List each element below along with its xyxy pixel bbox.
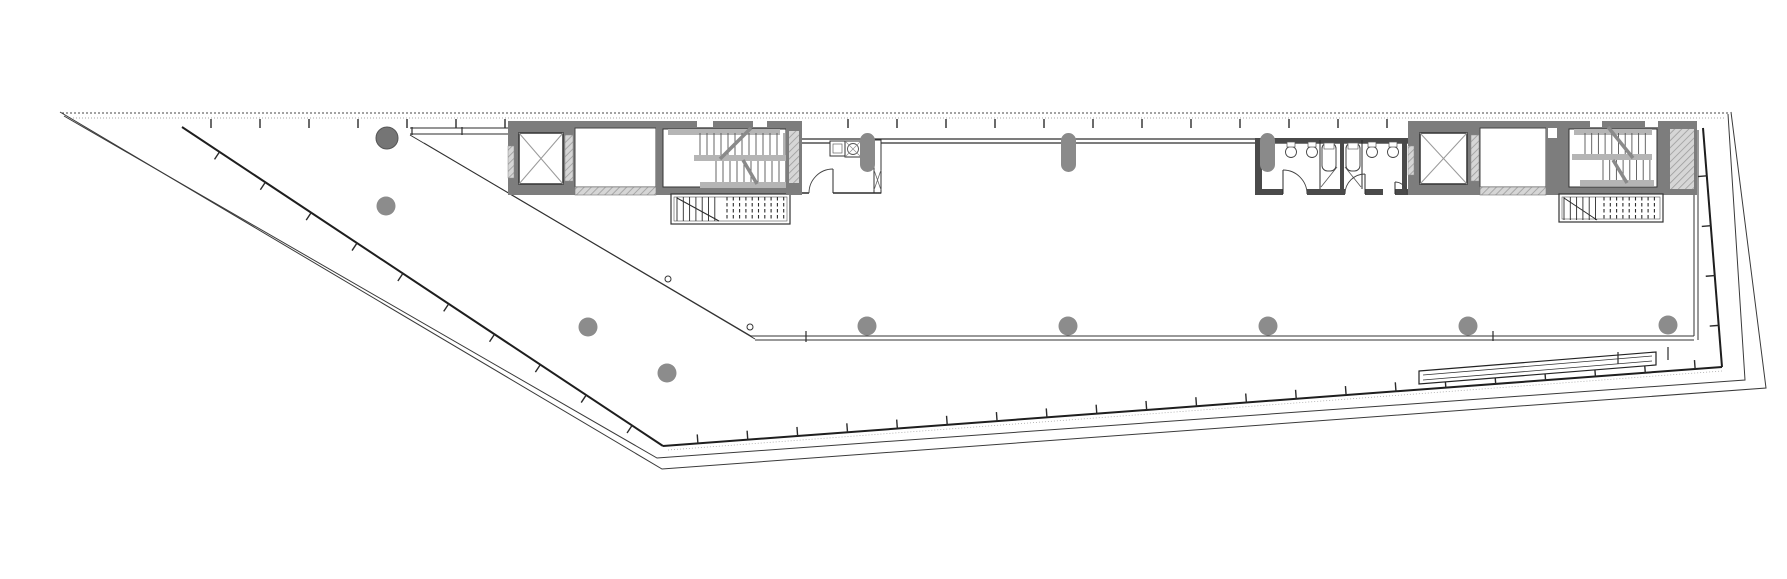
door-gap — [1548, 128, 1557, 138]
mullion-tick — [947, 416, 948, 425]
mullion-tick — [1395, 382, 1396, 391]
strip-outline — [1419, 352, 1656, 384]
mullion-tick — [215, 152, 220, 159]
exterior-stair-outline — [1559, 194, 1663, 222]
column-marker — [1459, 317, 1478, 336]
mullion-tick — [1698, 176, 1707, 177]
mullion-tick — [444, 304, 449, 311]
mullion-tick — [1196, 397, 1197, 406]
mullion-tick — [1246, 394, 1247, 403]
elevator-door — [1408, 146, 1414, 175]
mullion-tick — [996, 412, 997, 421]
restroom-top-wall — [1255, 138, 1408, 143]
vent-gap — [753, 121, 767, 127]
basin-tap — [1308, 142, 1316, 147]
vent-gap — [1645, 121, 1658, 127]
point-marker — [747, 324, 753, 330]
mullion-tick — [490, 334, 495, 341]
lobby-bottom-wall — [575, 187, 656, 195]
lobby-room — [575, 128, 656, 187]
restroom-bottom-wall — [1255, 189, 1283, 195]
basin-fixture — [1307, 147, 1318, 158]
elevator-door — [1471, 135, 1479, 181]
vent-gap — [697, 121, 713, 127]
glass-shadow-dotted — [668, 371, 1722, 450]
mullion-tick — [1702, 226, 1711, 227]
basin-fixture — [1286, 147, 1297, 158]
column-marker — [1059, 317, 1078, 336]
core-wall-hatch — [789, 131, 799, 183]
mullion-tick — [1296, 390, 1297, 399]
mullion-tick — [797, 427, 798, 436]
elevator-door — [508, 146, 514, 178]
basin-tap — [1287, 142, 1295, 147]
stair-landing — [700, 182, 786, 188]
capsule-column — [1260, 133, 1275, 172]
column-marker — [858, 317, 877, 336]
left-core — [508, 121, 802, 224]
stair-landing — [1572, 154, 1652, 160]
vent-gap — [1590, 121, 1602, 127]
mullion-tick — [1096, 405, 1097, 414]
capsule-column — [860, 133, 875, 172]
exterior-stair-outline — [671, 194, 790, 224]
toilet-tank — [1348, 143, 1358, 149]
lobby-room — [1480, 128, 1546, 187]
floor-plan-svg — [0, 0, 1787, 579]
restroom-wall — [1402, 141, 1407, 189]
mullion-tick — [398, 273, 403, 280]
restroom-bottom-wall — [1307, 189, 1345, 195]
point-marker — [665, 276, 671, 282]
column-marker — [1259, 317, 1278, 336]
mullion-tick — [847, 423, 848, 432]
mullion-tick — [1706, 276, 1715, 277]
glass-line — [663, 367, 1722, 446]
column-marker — [579, 318, 598, 337]
mullion-tick — [1146, 401, 1147, 410]
column-marker — [1659, 316, 1678, 335]
basin-tap — [1368, 142, 1376, 147]
restroom-wall — [1340, 141, 1344, 189]
stair-landing — [1580, 180, 1654, 186]
mullion-tick — [306, 213, 311, 220]
mullion-tick — [897, 420, 898, 429]
column-marker — [658, 364, 677, 383]
restrooms — [1255, 138, 1408, 195]
restroom-bottom-wall — [1365, 189, 1383, 195]
floor-plan-page — [0, 0, 1787, 579]
lobby-bottom-wall — [1480, 187, 1546, 195]
right-core — [1408, 121, 1697, 222]
basin-fixture — [1367, 147, 1378, 158]
column-marker — [376, 127, 398, 149]
mullion-tick — [1710, 325, 1719, 326]
mullion-tick — [747, 431, 748, 440]
mullion-tick — [1046, 408, 1047, 417]
lobby-top-wall — [575, 121, 656, 128]
mullion-tick — [260, 182, 265, 189]
column-marker — [377, 197, 396, 216]
lobby-top-wall — [1480, 121, 1546, 128]
toilet-tank — [1324, 143, 1334, 149]
mullion-tick — [697, 434, 698, 443]
door-swing-arc — [1283, 170, 1307, 194]
mullion-tick — [535, 365, 540, 372]
basin-fixture — [1388, 147, 1399, 158]
mullion-tick — [581, 395, 586, 402]
mullion-tick — [627, 425, 632, 432]
mullion-tick — [1694, 360, 1695, 369]
kitchenette-side-wall — [874, 140, 881, 193]
mullion-tick — [1345, 386, 1346, 395]
elevator-door — [565, 135, 573, 181]
basin-tap — [1389, 142, 1397, 147]
door-swing-arc — [809, 169, 833, 193]
core-wall-hatch — [1670, 129, 1694, 189]
mullion-tick — [352, 243, 357, 250]
counter-unit — [830, 141, 845, 156]
stair-landing — [694, 155, 786, 161]
roof-strip — [1419, 347, 1668, 384]
glass-line — [1703, 128, 1722, 367]
capsule-column — [1061, 133, 1076, 172]
